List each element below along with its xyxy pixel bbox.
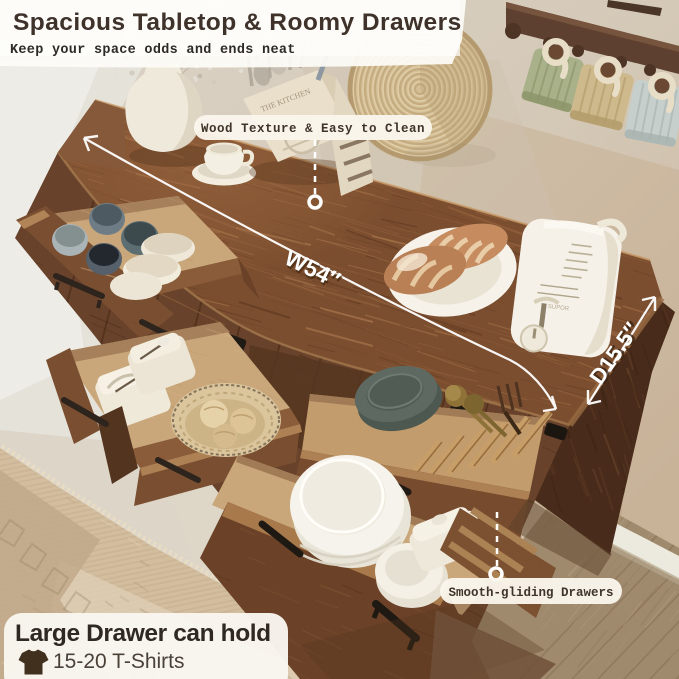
svg-text:Keep your space odds and ends: Keep your space odds and ends neat xyxy=(10,43,296,58)
svg-text:15-20 T-Shirts: 15-20 T-Shirts xyxy=(53,650,185,673)
svg-text:Wood Texture & Easy to Clean: Wood Texture & Easy to Clean xyxy=(201,122,425,136)
svg-text:Large Drawer can hold: Large Drawer can hold xyxy=(15,620,271,647)
svg-text:Smooth-gliding Drawers: Smooth-gliding Drawers xyxy=(448,586,613,600)
svg-text:Spacious Tabletop & Roomy Draw: Spacious Tabletop & Roomy Drawers xyxy=(13,9,462,36)
